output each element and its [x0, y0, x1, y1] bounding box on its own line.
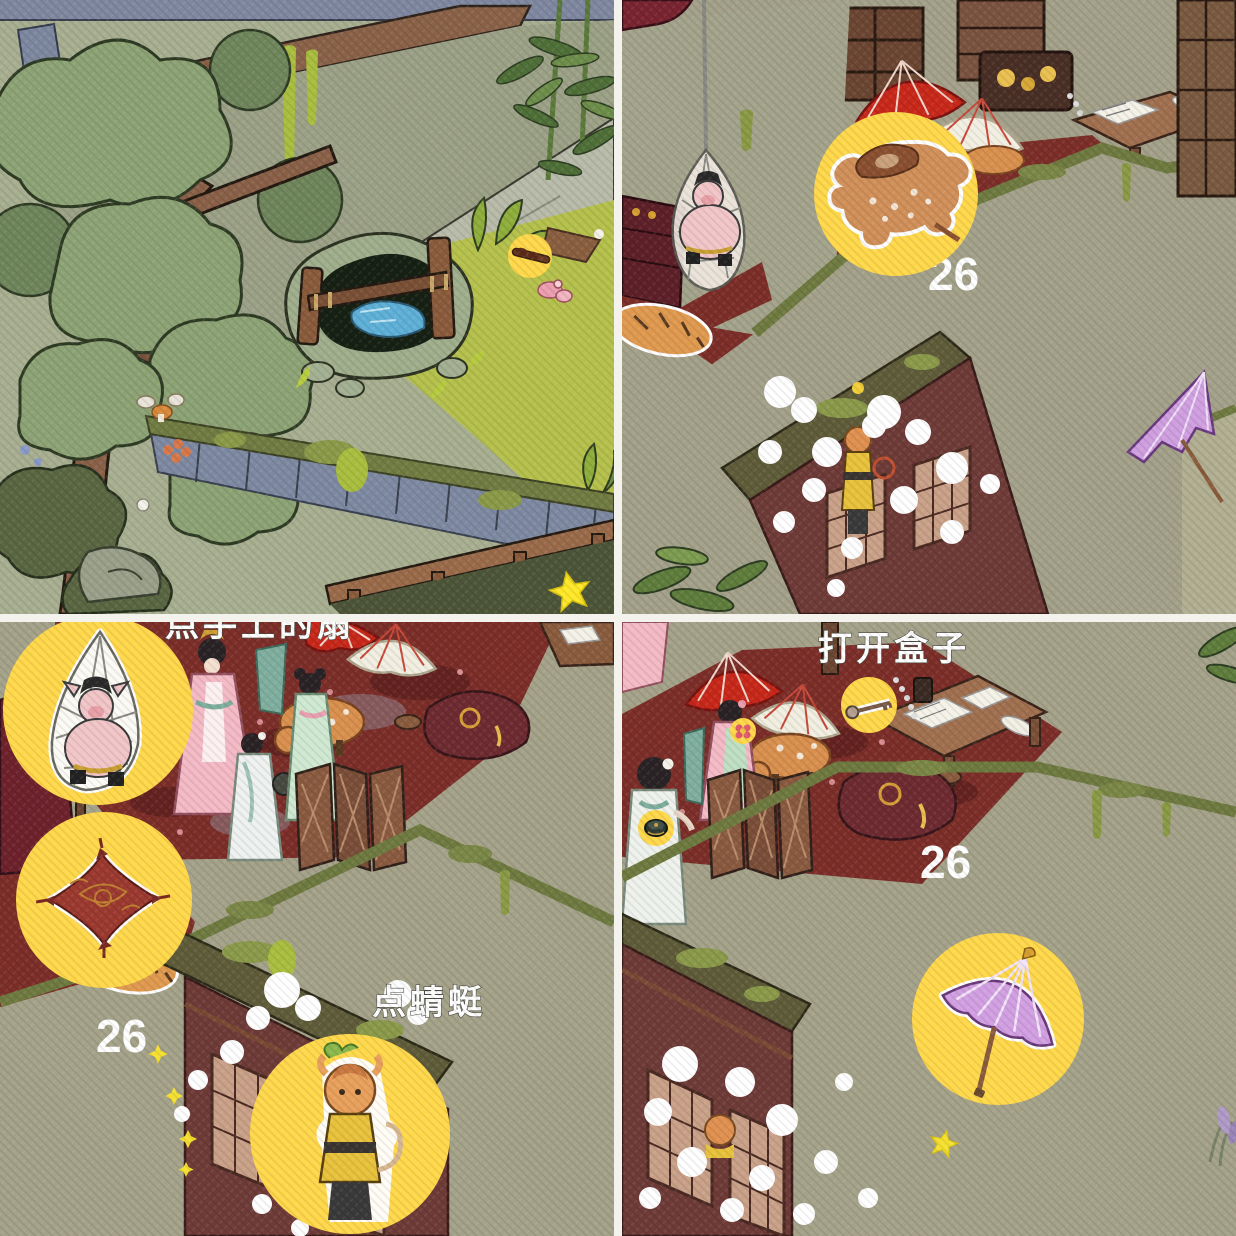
hint-circle-monkey[interactable] — [250, 1034, 450, 1234]
stool — [395, 715, 421, 729]
room-right-scene: 打开盒子 26 — [622, 622, 1236, 1236]
hint-circle-stick[interactable] — [508, 234, 552, 278]
round-table — [424, 691, 529, 759]
folding-screen — [296, 764, 406, 870]
instruction-open-box: 打开盒子 — [818, 629, 970, 668]
screenshot-grid: 26 — [0, 0, 1236, 1236]
lattice-corner — [1178, 0, 1236, 196]
hint-circle-box[interactable] — [638, 810, 674, 846]
instruction-dragonfly: 点蜻蜓 — [372, 984, 486, 1022]
counter: 26 — [96, 1010, 147, 1062]
hint-circle-flower[interactable] — [730, 718, 756, 744]
spring-water — [351, 301, 424, 337]
quadrant-top-right: 26 — [622, 0, 1236, 614]
instruction-top: 点手上的扇 — [165, 622, 355, 644]
teal-cloth — [256, 644, 286, 714]
quadrant-bottom-left: 点手上的扇 点蜻蜓 26 — [0, 622, 614, 1236]
hint-circle-cushion[interactable] — [16, 812, 192, 988]
hint-circle-pig[interactable] — [3, 622, 193, 805]
room-closeup-scene: 点手上的扇 点蜻蜓 26 — [0, 622, 614, 1236]
monkey-peeking — [705, 1115, 735, 1158]
quadrant-bottom-right: 打开盒子 26 — [622, 622, 1236, 1236]
white-dot — [594, 229, 604, 239]
round-table — [839, 763, 956, 840]
garden-scene — [0, 0, 614, 614]
round-box-sticker — [645, 820, 667, 836]
lady-fragment — [622, 622, 668, 692]
quadrant-top-left — [0, 0, 614, 614]
attic-room-scene: 26 — [622, 0, 1236, 614]
dark-jar — [914, 678, 932, 702]
counter: 26 — [920, 836, 971, 888]
left-wall-moss — [740, 110, 753, 152]
hint-circle-key[interactable] — [841, 677, 897, 733]
teal-sash — [684, 728, 704, 804]
